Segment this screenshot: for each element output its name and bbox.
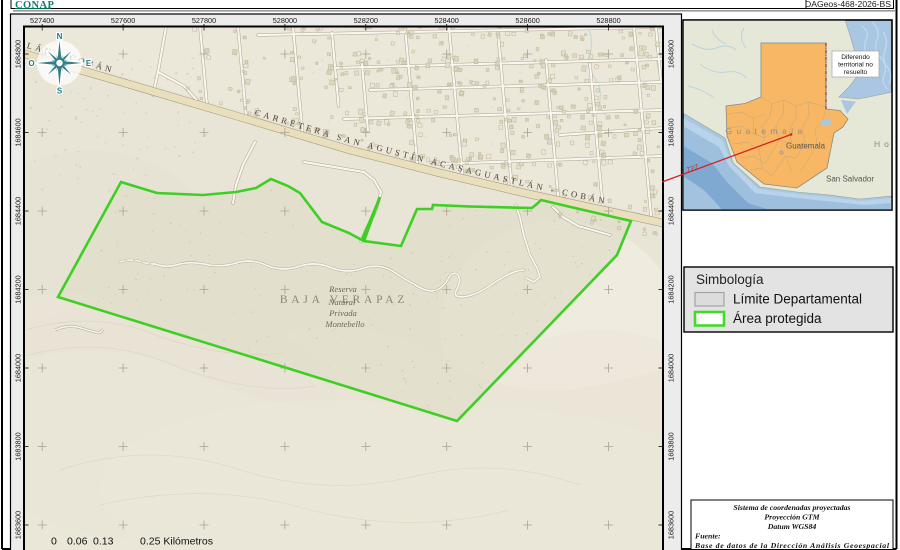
svg-text:Guatemala: Guatemala bbox=[725, 126, 806, 136]
svg-text:528400: 528400 bbox=[435, 16, 459, 25]
svg-text:Área protegida: Área protegida bbox=[733, 311, 822, 326]
svg-text:1684600: 1684600 bbox=[14, 118, 23, 146]
svg-text:528600: 528600 bbox=[515, 16, 539, 25]
svg-text:1684000: 1684000 bbox=[14, 354, 23, 382]
svg-text:Reserva: Reserva bbox=[328, 284, 357, 294]
svg-text:1684600: 1684600 bbox=[667, 118, 676, 146]
svg-text:Diferendo: Diferendo bbox=[841, 54, 870, 61]
svg-text:1684200: 1684200 bbox=[14, 275, 23, 303]
svg-text:528000: 528000 bbox=[273, 16, 297, 25]
svg-text:1684000: 1684000 bbox=[667, 354, 676, 382]
svg-text:528200: 528200 bbox=[354, 16, 378, 25]
svg-text:1683600: 1683600 bbox=[14, 511, 23, 539]
svg-text:1684400: 1684400 bbox=[667, 197, 676, 225]
svg-text:527800: 527800 bbox=[192, 16, 216, 25]
svg-text:1683600: 1683600 bbox=[667, 511, 676, 539]
svg-text:Ho: Ho bbox=[874, 139, 893, 149]
svg-text:Fuente:: Fuente: bbox=[695, 532, 721, 541]
svg-text:1684400: 1684400 bbox=[14, 197, 23, 225]
svg-text:1684200: 1684200 bbox=[667, 275, 676, 303]
svg-text:1684800: 1684800 bbox=[14, 40, 23, 68]
svg-text:1683800: 1683800 bbox=[667, 432, 676, 460]
svg-text:Base de datos de la Dirección: Base de datos de la Dirección Análisis G… bbox=[694, 541, 890, 550]
svg-text:Guatemala: Guatemala bbox=[786, 142, 826, 151]
svg-text:Privada: Privada bbox=[328, 308, 357, 318]
svg-text:Datum WGS84: Datum WGS84 bbox=[767, 522, 817, 531]
svg-text:DAGeos-468-2026-BS: DAGeos-468-2026-BS bbox=[805, 0, 891, 9]
svg-text:Proyección GTM: Proyección GTM bbox=[764, 513, 820, 522]
svg-text:N: N bbox=[57, 32, 63, 41]
svg-text:527600: 527600 bbox=[111, 16, 135, 25]
svg-text:O: O bbox=[28, 59, 34, 68]
svg-text:Límite Departamental: Límite Departamental bbox=[733, 292, 862, 307]
svg-text:San Salvador: San Salvador bbox=[826, 175, 874, 184]
svg-text:S: S bbox=[57, 87, 63, 96]
svg-text:Montebello: Montebello bbox=[324, 319, 365, 329]
svg-text:528800: 528800 bbox=[596, 16, 620, 25]
svg-text:Natural: Natural bbox=[328, 297, 356, 307]
svg-text:CONAP: CONAP bbox=[15, 0, 55, 11]
svg-text:territorial no: territorial no bbox=[838, 62, 873, 69]
svg-text:resuelto: resuelto bbox=[844, 69, 868, 76]
svg-text:E: E bbox=[86, 59, 92, 68]
svg-text:Simbología: Simbología bbox=[696, 272, 764, 287]
svg-text:1683800: 1683800 bbox=[14, 432, 23, 460]
svg-text:Sistema de coordenadas proyect: Sistema de coordenadas proyectadas bbox=[733, 503, 850, 512]
svg-text:527400: 527400 bbox=[30, 16, 54, 25]
svg-text:1684800: 1684800 bbox=[667, 40, 676, 68]
